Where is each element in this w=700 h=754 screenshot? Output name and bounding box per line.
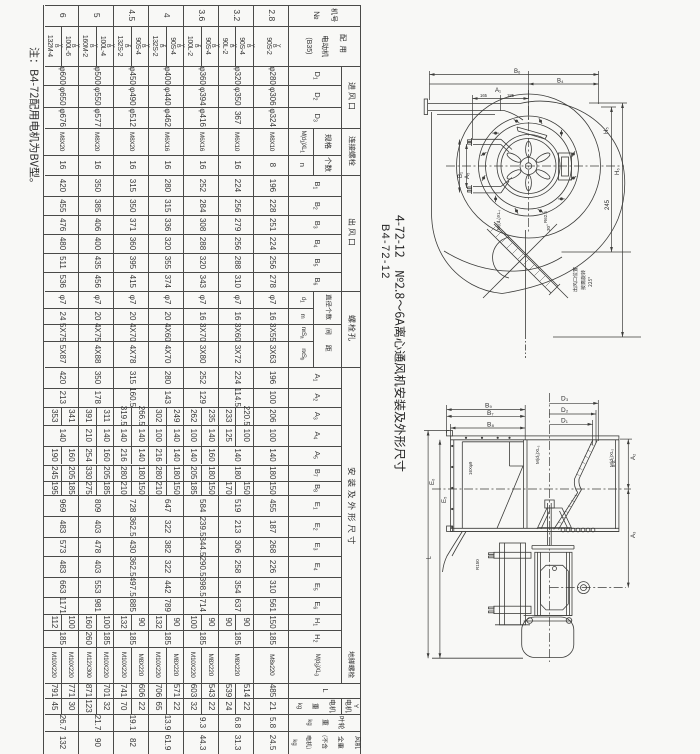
svg-text:A₂: A₂ xyxy=(631,453,637,460)
svg-text:B₉: B₉ xyxy=(485,403,492,410)
svg-text:16Xφ9: 16Xφ9 xyxy=(468,461,473,475)
svg-text:D₃: D₃ xyxy=(561,396,569,403)
svg-text:185: 185 xyxy=(507,93,515,98)
svg-text:245: 245 xyxy=(605,199,611,210)
svg-text:H₆: H₆ xyxy=(615,168,621,175)
svg-text:B₈: B₈ xyxy=(487,421,494,428)
svg-text:H₅: H₅ xyxy=(604,127,610,134)
svg-text:R62.5: R62.5 xyxy=(543,210,548,223)
svg-text:E₆: E₆ xyxy=(430,478,436,485)
svg-text:D₂: D₂ xyxy=(561,407,569,414)
svg-text:D₁: D₁ xyxy=(561,418,569,425)
svg-text:A₃: A₃ xyxy=(631,531,637,538)
svg-text:A₁: A₁ xyxy=(495,88,501,94)
svg-text:M(d₃)XL₃: M(d₃)XL₃ xyxy=(535,445,540,464)
svg-text:L: L xyxy=(427,556,433,560)
svg-text:165: 165 xyxy=(480,93,488,98)
svg-text:30°: 30° xyxy=(546,224,551,231)
svg-text:M₁(d₄)XL₄: M₁(d₄)XL₄ xyxy=(496,210,501,230)
svg-text:B₁: B₁ xyxy=(458,172,464,178)
svg-text:B₇: B₇ xyxy=(487,410,494,417)
svg-text:R150: R150 xyxy=(475,559,480,570)
svg-text:8-Z: 8-Z xyxy=(611,460,616,467)
svg-text:A₅: A₅ xyxy=(465,172,471,179)
svg-text:B₄: B₄ xyxy=(557,79,564,85)
svg-text:B₆: B₆ xyxy=(514,69,521,75)
svg-text:E₅: E₅ xyxy=(442,496,448,503)
